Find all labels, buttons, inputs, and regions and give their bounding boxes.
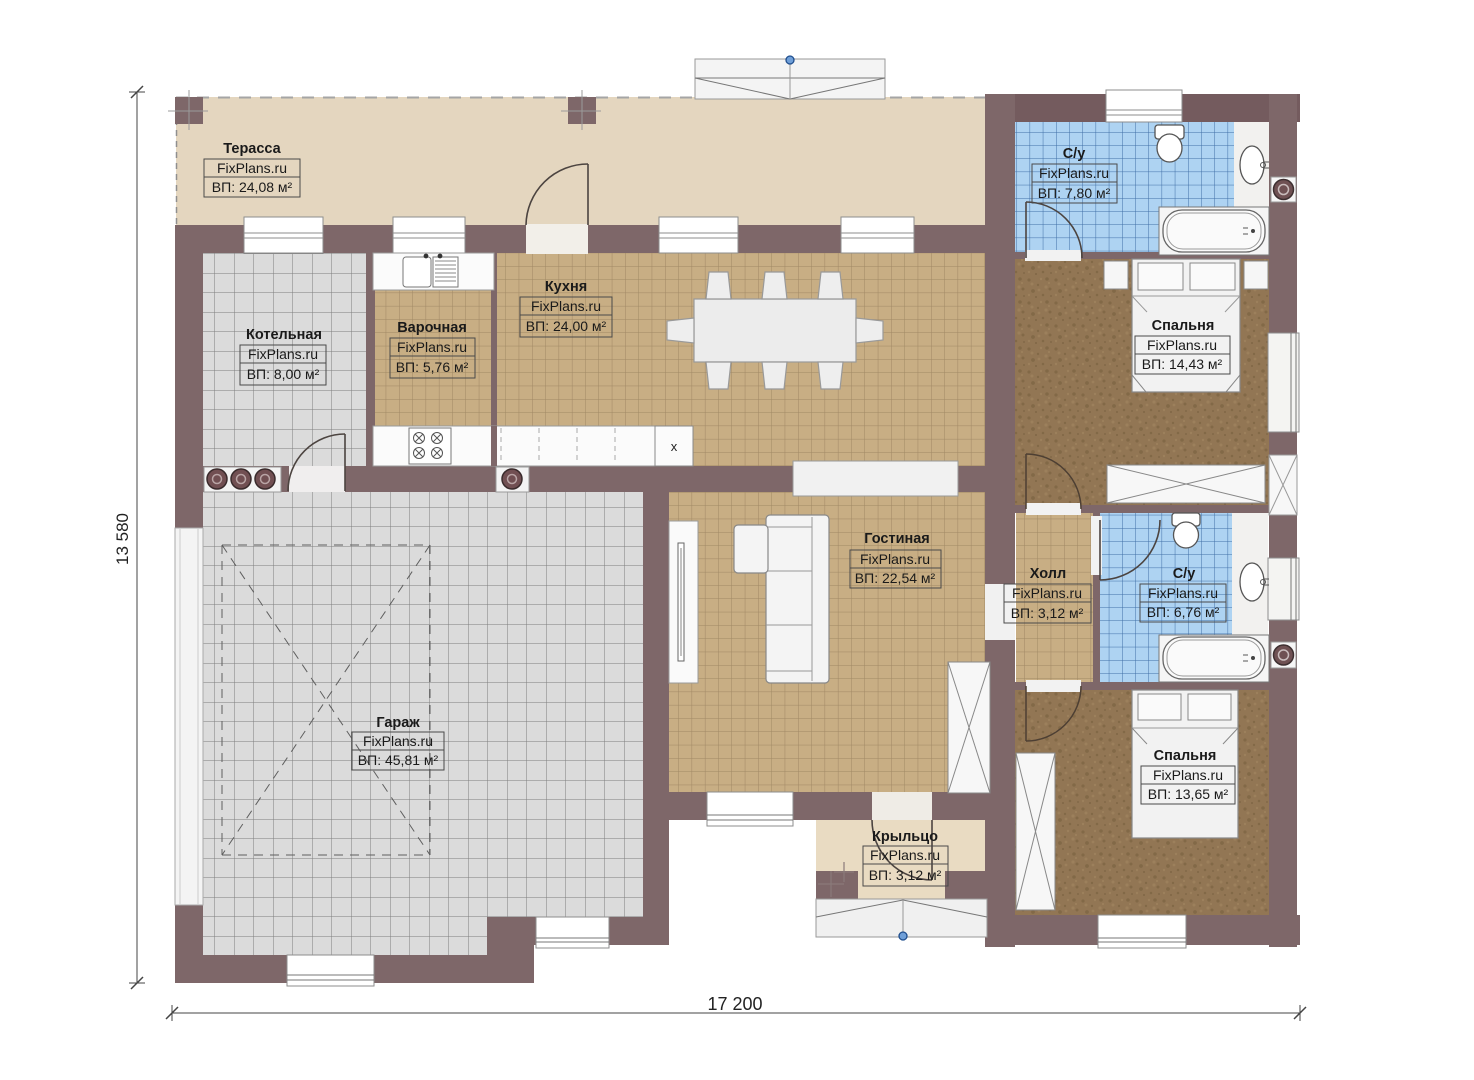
svg-text:FixPlans.ru: FixPlans.ru — [217, 160, 287, 176]
svg-text:Гараж: Гараж — [376, 715, 420, 731]
svg-text:ВП: 14,43 м²: ВП: 14,43 м² — [1142, 356, 1223, 372]
svg-text:FixPlans.ru: FixPlans.ru — [1012, 585, 1082, 601]
svg-text:FixPlans.ru: FixPlans.ru — [363, 733, 433, 749]
svg-text:17 200: 17 200 — [707, 994, 762, 1014]
svg-text:FixPlans.ru: FixPlans.ru — [860, 551, 930, 567]
svg-text:FixPlans.ru: FixPlans.ru — [1039, 165, 1109, 181]
svg-text:ВП: 3,12 м²: ВП: 3,12 м² — [1011, 605, 1084, 621]
svg-text:ВП: 5,76 м²: ВП: 5,76 м² — [396, 359, 469, 375]
svg-text:FixPlans.ru: FixPlans.ru — [531, 298, 601, 314]
svg-text:Кухня: Кухня — [545, 279, 587, 295]
svg-text:С/у: С/у — [1173, 566, 1196, 582]
svg-text:FixPlans.ru: FixPlans.ru — [1148, 585, 1218, 601]
svg-text:FixPlans.ru: FixPlans.ru — [397, 339, 467, 355]
svg-text:Крыльцо: Крыльцо — [872, 829, 938, 845]
svg-text:Спальня: Спальня — [1154, 748, 1217, 764]
svg-text:Гостиная: Гостиная — [864, 531, 930, 547]
svg-text:ВП: 24,08 м²: ВП: 24,08 м² — [212, 179, 293, 195]
svg-text:Терасса: Терасса — [223, 141, 281, 157]
svg-text:ВП: 7,80 м²: ВП: 7,80 м² — [1038, 185, 1111, 201]
svg-text:ВП: 45,81 м²: ВП: 45,81 м² — [358, 752, 439, 768]
svg-text:Холл: Холл — [1030, 566, 1066, 582]
svg-text:13 580: 13 580 — [113, 513, 132, 565]
svg-text:С/у: С/у — [1063, 146, 1086, 162]
svg-text:ВП: 6,76 м²: ВП: 6,76 м² — [1147, 604, 1220, 620]
svg-text:ВП: 24,00 м²: ВП: 24,00 м² — [526, 318, 607, 334]
svg-text:Варочная: Варочная — [397, 320, 467, 336]
svg-text:ВП: 3,12 м²: ВП: 3,12 м² — [869, 867, 942, 883]
svg-text:ВП: 13,65 м²: ВП: 13,65 м² — [1148, 786, 1229, 802]
svg-text:FixPlans.ru: FixPlans.ru — [1153, 767, 1223, 783]
svg-text:FixPlans.ru: FixPlans.ru — [1147, 337, 1217, 353]
svg-text:FixPlans.ru: FixPlans.ru — [870, 847, 940, 863]
svg-text:ВП: 22,54 м²: ВП: 22,54 м² — [855, 570, 936, 586]
svg-text:Котельная: Котельная — [246, 327, 322, 343]
svg-text:ВП: 8,00 м²: ВП: 8,00 м² — [247, 366, 320, 382]
svg-text:x: x — [671, 439, 678, 454]
svg-text:Спальня: Спальня — [1152, 318, 1215, 334]
svg-text:FixPlans.ru: FixPlans.ru — [248, 346, 318, 362]
